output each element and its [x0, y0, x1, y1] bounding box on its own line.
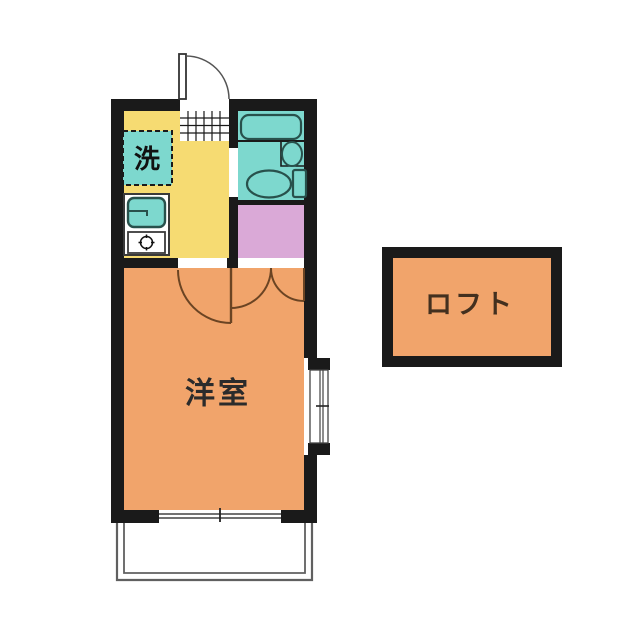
kitchen-door-threshold — [178, 258, 227, 268]
closet-side-wall — [229, 197, 238, 258]
bathroom-wall-upper — [229, 99, 238, 148]
bath-closet-divider-wall — [229, 200, 304, 205]
floor-plan: 洗 洋室 ロフト — [0, 0, 640, 640]
bathtub — [241, 115, 301, 139]
bathroom-door-opening — [229, 148, 238, 197]
laundry-label: 洗 — [134, 145, 160, 175]
toilet-tank-icon — [293, 170, 306, 197]
floor-plan-drawing: 洗 洋室 ロフト — [0, 0, 640, 640]
closet-door-threshold — [238, 258, 304, 268]
hand-basin-icon — [282, 142, 302, 166]
bay-window-cap-bottom — [308, 443, 330, 455]
right-wall-upper — [304, 99, 317, 358]
bottom-wall-right — [281, 510, 317, 523]
loft-label: ロフト — [425, 290, 515, 321]
bottom-wall-left — [111, 510, 159, 523]
mid-wall-left — [124, 258, 178, 268]
western-room-label: 洋室 — [185, 377, 251, 412]
mid-wall-stub — [227, 258, 238, 268]
bay-window-cap-top — [308, 358, 330, 370]
left-wall — [111, 99, 124, 523]
toilet-bowl-icon — [247, 171, 291, 198]
entry-door-leaf — [179, 54, 186, 99]
closet-floor — [238, 205, 304, 258]
